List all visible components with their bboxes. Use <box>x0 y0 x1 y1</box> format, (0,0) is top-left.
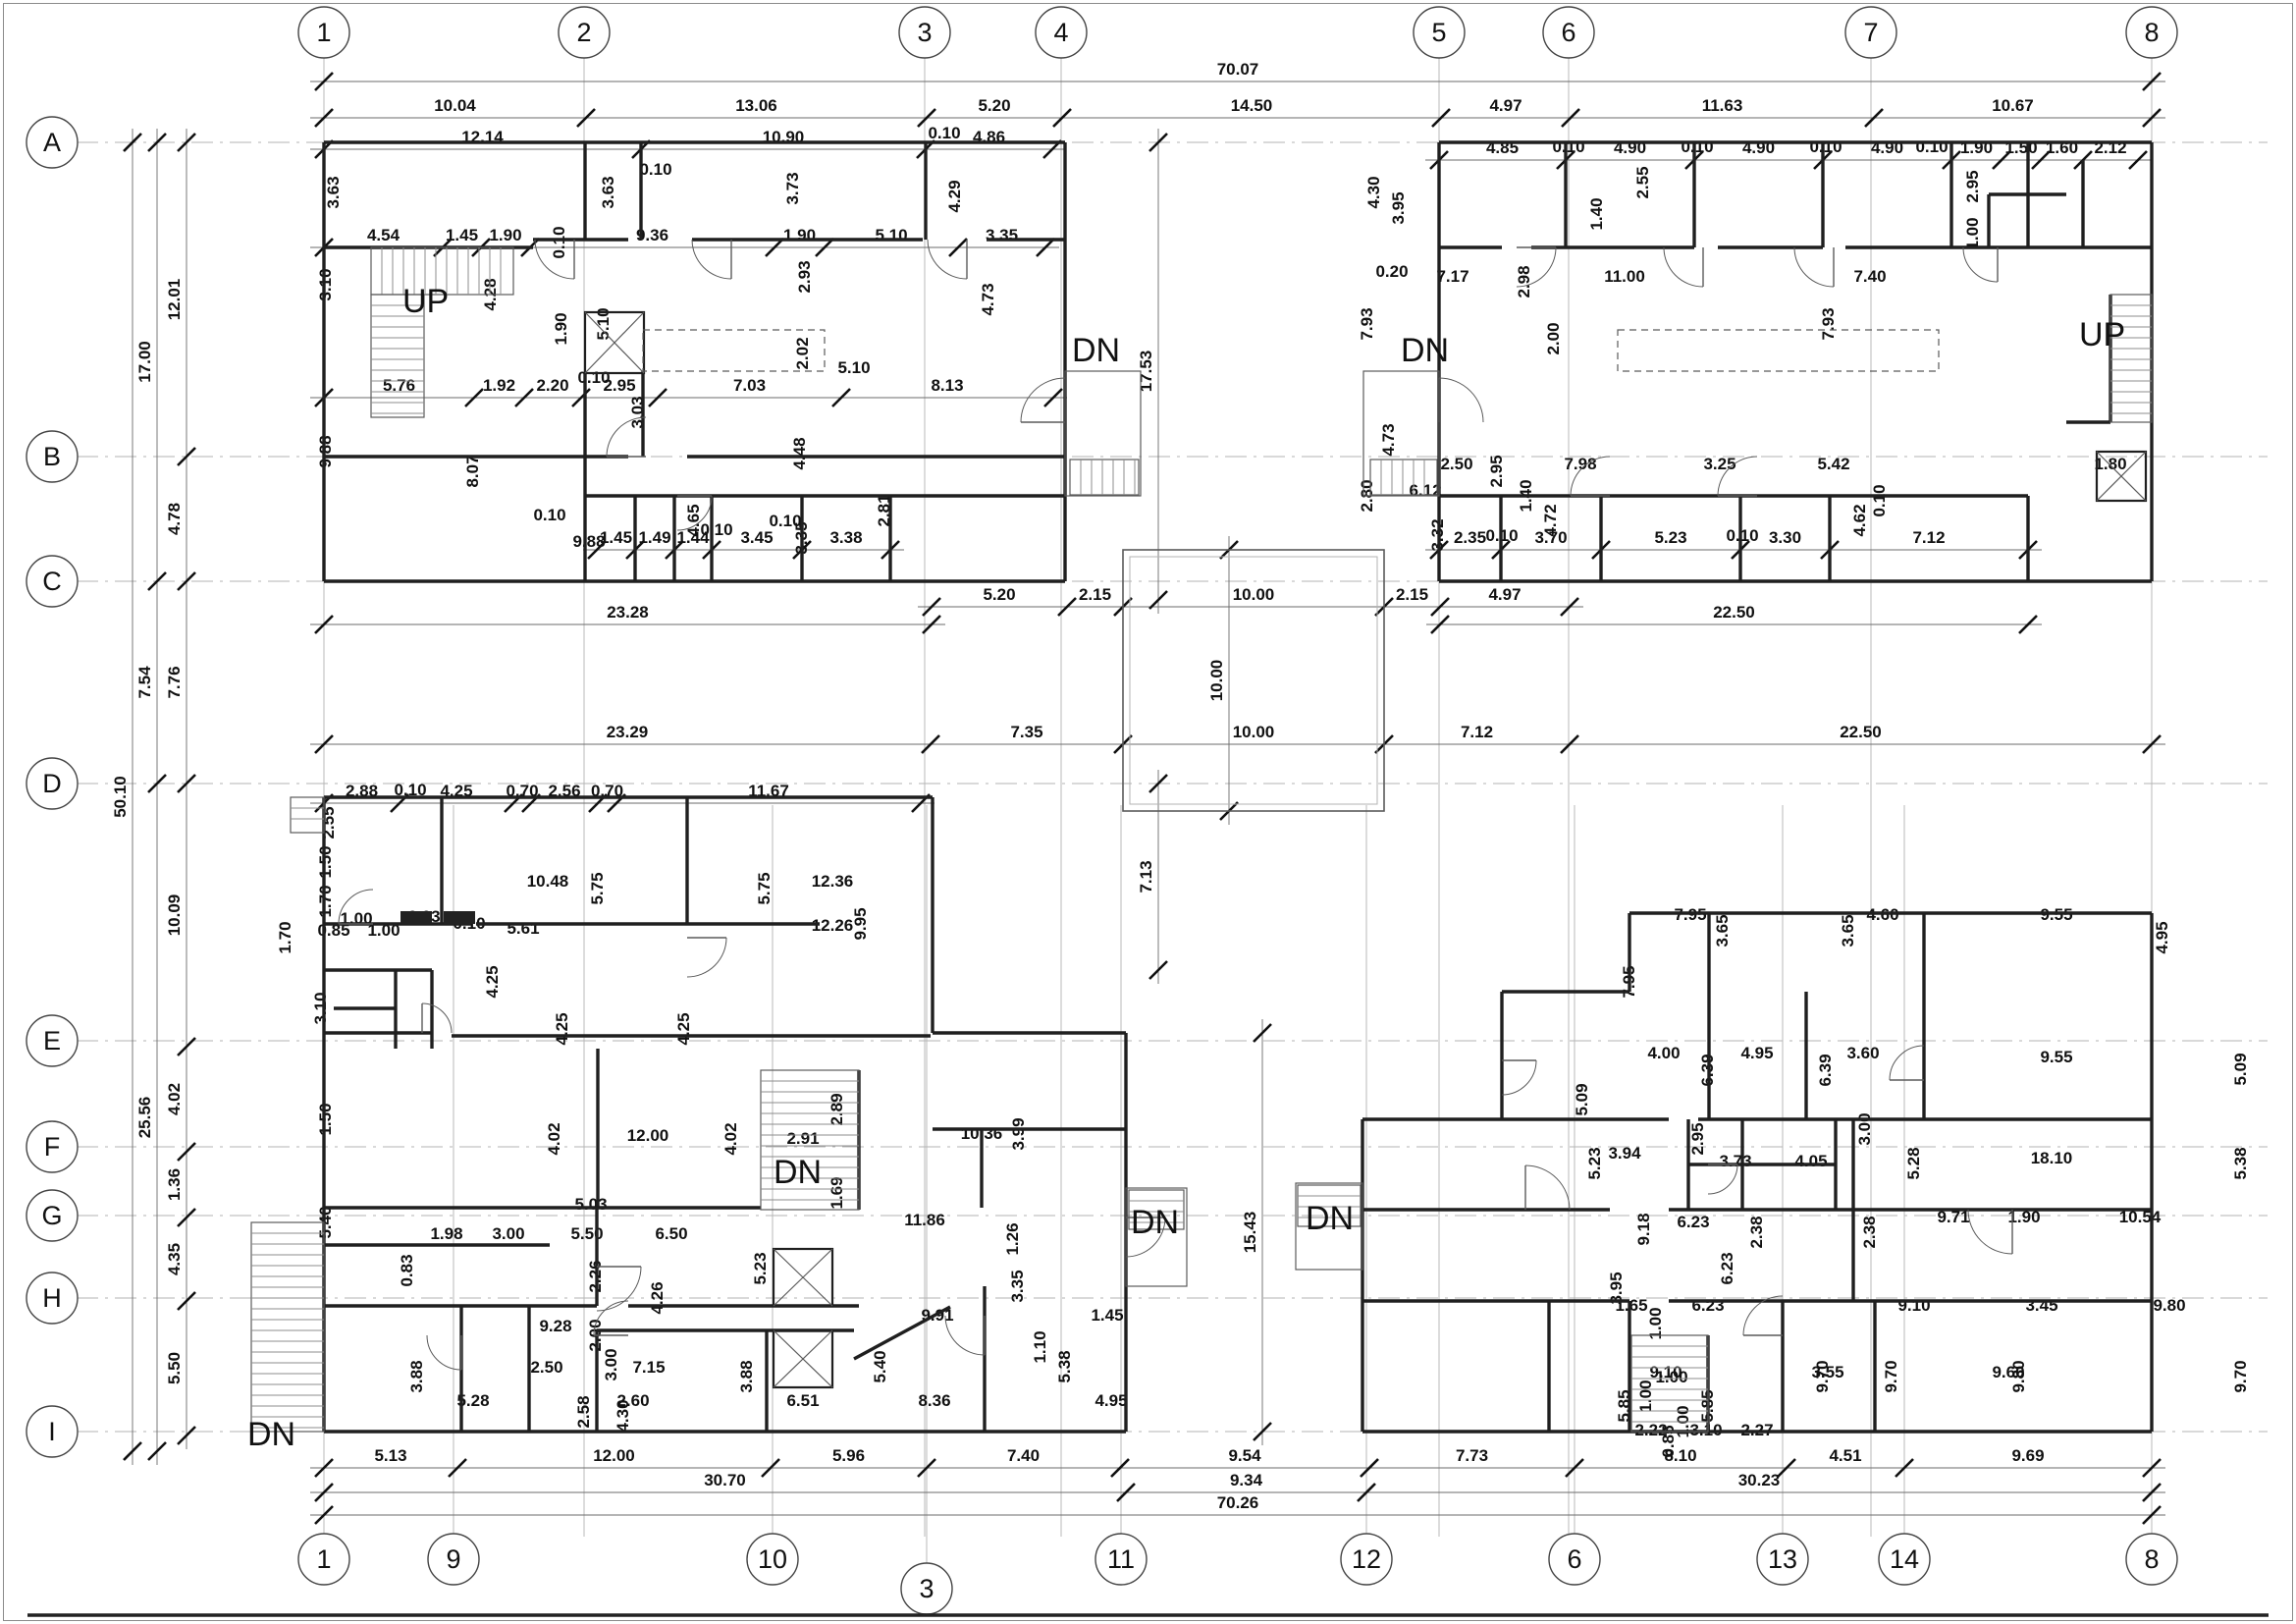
svg-text:14.50: 14.50 <box>1231 96 1273 115</box>
svg-text:4.02: 4.02 <box>545 1122 563 1155</box>
svg-text:5.96: 5.96 <box>832 1446 865 1465</box>
svg-text:10.04: 10.04 <box>434 96 476 115</box>
svg-text:5.23: 5.23 <box>751 1252 770 1284</box>
svg-text:4.73: 4.73 <box>1379 423 1398 456</box>
svg-text:3.10: 3.10 <box>311 992 330 1024</box>
svg-text:5.20: 5.20 <box>983 585 1015 604</box>
svg-text:A: A <box>43 128 61 157</box>
svg-text:B: B <box>43 442 61 471</box>
svg-text:5.75: 5.75 <box>755 872 774 904</box>
svg-text:5.40: 5.40 <box>871 1350 889 1382</box>
svg-text:7.12: 7.12 <box>1912 528 1945 547</box>
svg-text:3.94: 3.94 <box>1608 1144 1641 1163</box>
svg-text:3.73: 3.73 <box>783 172 802 204</box>
stair-label-dn: DN <box>1306 1200 1354 1237</box>
svg-text:1.26: 1.26 <box>1003 1222 1022 1255</box>
svg-text:10.00: 10.00 <box>1207 660 1226 702</box>
svg-text:9.88: 9.88 <box>572 532 605 551</box>
svg-text:1.70: 1.70 <box>276 921 294 953</box>
svg-text:2.60: 2.60 <box>616 1391 649 1410</box>
svg-text:9.95: 9.95 <box>851 907 870 940</box>
svg-text:4.00: 4.00 <box>1647 1044 1680 1062</box>
svg-text:1.69: 1.69 <box>828 1176 846 1209</box>
svg-text:12.00: 12.00 <box>627 1126 669 1145</box>
svg-text:9.80: 9.80 <box>2153 1296 2185 1315</box>
svg-text:5.28: 5.28 <box>1904 1147 1923 1179</box>
svg-text:6: 6 <box>1567 1544 1581 1574</box>
svg-text:10.48: 10.48 <box>527 872 569 891</box>
svg-text:3.88: 3.88 <box>407 1360 426 1392</box>
svg-text:2.20: 2.20 <box>536 376 568 395</box>
svg-text:3: 3 <box>917 18 932 47</box>
svg-text:10: 10 <box>758 1544 787 1574</box>
svg-text:2: 2 <box>576 18 591 47</box>
svg-text:3.73: 3.73 <box>1719 1152 1751 1170</box>
svg-text:2.35: 2.35 <box>1454 528 1486 547</box>
svg-text:9.28: 9.28 <box>539 1317 571 1335</box>
svg-text:1.98: 1.98 <box>430 1224 462 1243</box>
svg-text:2.55: 2.55 <box>319 806 338 839</box>
svg-text:3.30: 3.30 <box>1769 528 1801 547</box>
svg-text:4.95: 4.95 <box>1095 1391 1127 1410</box>
svg-text:9.69: 9.69 <box>2011 1446 2044 1465</box>
svg-text:6.50: 6.50 <box>655 1224 687 1243</box>
svg-text:12.01: 12.01 <box>165 279 184 321</box>
svg-text:7.03: 7.03 <box>733 376 766 395</box>
svg-text:0.10: 0.10 <box>928 124 960 142</box>
svg-text:7.40: 7.40 <box>1007 1446 1040 1465</box>
svg-text:2.58: 2.58 <box>574 1395 593 1428</box>
svg-text:0.10: 0.10 <box>769 512 801 530</box>
svg-text:10.00: 10.00 <box>1233 585 1275 604</box>
svg-text:6.23: 6.23 <box>1677 1213 1709 1231</box>
svg-text:6.51: 6.51 <box>786 1391 819 1410</box>
svg-text:6: 6 <box>1561 18 1575 47</box>
svg-text:1.45: 1.45 <box>1091 1306 1123 1325</box>
svg-text:2.89: 2.89 <box>828 1093 846 1125</box>
svg-text:11.86: 11.86 <box>904 1211 945 1229</box>
svg-text:4.05: 4.05 <box>1794 1152 1827 1170</box>
svg-text:4.95: 4.95 <box>1740 1044 1773 1062</box>
svg-text:2.38: 2.38 <box>1747 1216 1766 1248</box>
svg-text:2.00: 2.00 <box>1544 322 1563 354</box>
svg-text:0.10: 0.10 <box>1681 137 1713 156</box>
svg-text:3.00: 3.00 <box>602 1348 620 1380</box>
svg-text:13: 13 <box>1768 1544 1797 1574</box>
stair-label-up: UP <box>2079 316 2125 353</box>
svg-text:5.75: 5.75 <box>588 872 607 904</box>
svg-text:4.48: 4.48 <box>790 437 809 469</box>
svg-text:0.10: 0.10 <box>550 226 568 258</box>
svg-text:5.42: 5.42 <box>1817 455 1849 473</box>
svg-text:3.45: 3.45 <box>740 528 773 547</box>
svg-text:8.13: 8.13 <box>931 376 963 395</box>
svg-text:2.91: 2.91 <box>786 1129 819 1148</box>
svg-text:7: 7 <box>1863 18 1878 47</box>
svg-text:2.95: 2.95 <box>1487 455 1506 487</box>
svg-text:70.07: 70.07 <box>1217 60 1259 79</box>
svg-text:4.72: 4.72 <box>1541 504 1560 536</box>
svg-text:5.23: 5.23 <box>1585 1147 1604 1179</box>
svg-text:7.17: 7.17 <box>1436 267 1468 286</box>
svg-text:4: 4 <box>1053 18 1068 47</box>
svg-text:5.09: 5.09 <box>2231 1053 2250 1085</box>
svg-text:0.10: 0.10 <box>1915 137 1948 156</box>
svg-text:0.10: 0.10 <box>700 520 732 539</box>
svg-text:5.23: 5.23 <box>1654 528 1686 547</box>
svg-text:3.99: 3.99 <box>1009 1117 1028 1150</box>
svg-text:7.93: 7.93 <box>1819 307 1838 340</box>
grid-lines <box>27 57 2268 1563</box>
svg-text:3.35: 3.35 <box>1008 1270 1027 1302</box>
svg-text:4.95: 4.95 <box>2153 921 2171 953</box>
svg-text:3.65: 3.65 <box>1713 914 1732 947</box>
svg-text:3.38: 3.38 <box>829 528 862 547</box>
stair-label-dn: DN <box>247 1416 295 1453</box>
svg-text:2.55: 2.55 <box>1633 166 1652 198</box>
svg-text:G: G <box>41 1201 62 1230</box>
svg-text:1.00: 1.00 <box>1636 1380 1655 1412</box>
svg-text:3.55: 3.55 <box>1811 1363 1843 1381</box>
svg-text:22.50: 22.50 <box>1840 723 1882 741</box>
svg-text:9: 9 <box>446 1544 460 1574</box>
svg-text:9.60: 9.60 <box>1992 1363 2024 1381</box>
svg-text:1: 1 <box>316 18 331 47</box>
svg-text:7.54: 7.54 <box>135 666 154 699</box>
svg-text:5: 5 <box>1431 18 1446 47</box>
svg-text:9.10: 9.10 <box>1897 1296 1930 1315</box>
svg-text:8.07: 8.07 <box>463 455 482 487</box>
svg-text:2.95: 2.95 <box>1688 1122 1707 1155</box>
svg-text:7.13: 7.13 <box>1137 860 1155 893</box>
svg-text:7.73: 7.73 <box>1456 1446 1488 1465</box>
svg-text:0.10: 0.10 <box>1726 526 1758 545</box>
svg-text:3.00: 3.00 <box>492 1224 524 1243</box>
svg-text:1: 1 <box>316 1544 331 1574</box>
svg-text:5.50: 5.50 <box>165 1352 184 1384</box>
svg-text:50.10: 50.10 <box>111 776 130 818</box>
svg-text:4.26: 4.26 <box>648 1281 667 1314</box>
svg-text:10.00: 10.00 <box>1233 723 1275 741</box>
svg-text:9.34: 9.34 <box>1230 1471 1263 1489</box>
svg-text:0.10: 0.10 <box>533 506 565 524</box>
svg-text:4.25: 4.25 <box>483 965 502 998</box>
svg-text:0.10: 0.10 <box>639 160 671 179</box>
stair-label-dn: DN <box>1072 332 1120 369</box>
svg-text:15.43: 15.43 <box>1241 1212 1259 1254</box>
stair-label-dn: DN <box>1401 332 1449 369</box>
svg-text:3.60: 3.60 <box>1846 1044 1879 1062</box>
svg-text:4.97: 4.97 <box>1488 585 1521 604</box>
floor-plan-canvas: 12345678191031112613148ABCDEFGHI70.0710.… <box>0 0 2296 1624</box>
svg-text:C: C <box>42 567 62 596</box>
svg-text:3.88: 3.88 <box>737 1360 756 1392</box>
svg-text:3.63: 3.63 <box>599 176 617 208</box>
floorplan-sheet: 12345678191031112613148ABCDEFGHI70.0710.… <box>0 0 2296 1624</box>
svg-text:4.02: 4.02 <box>721 1122 740 1155</box>
svg-text:1.49: 1.49 <box>638 528 670 547</box>
svg-text:9.70: 9.70 <box>1882 1360 1900 1392</box>
svg-text:6.39: 6.39 <box>1816 1054 1835 1086</box>
svg-text:D: D <box>42 769 62 798</box>
svg-text:9.54: 9.54 <box>1228 1446 1261 1465</box>
svg-text:2.38: 2.38 <box>1860 1216 1879 1248</box>
svg-text:23.28: 23.28 <box>607 603 649 622</box>
svg-text:5.03: 5.03 <box>574 1195 607 1214</box>
svg-text:4.51: 4.51 <box>1829 1446 1861 1465</box>
svg-text:0.83: 0.83 <box>398 1254 416 1286</box>
svg-text:9.18: 9.18 <box>1634 1213 1653 1245</box>
svg-text:2.95: 2.95 <box>1963 170 1982 202</box>
svg-text:30.70: 30.70 <box>704 1471 746 1489</box>
svg-text:14: 14 <box>1890 1544 1919 1574</box>
svg-text:1.45: 1.45 <box>446 226 478 244</box>
svg-text:70.26: 70.26 <box>1217 1493 1259 1512</box>
svg-text:1.10: 1.10 <box>1031 1330 1049 1363</box>
svg-text:3.95: 3.95 <box>1389 191 1408 224</box>
svg-text:0.10: 0.10 <box>577 368 610 387</box>
svg-text:1.90: 1.90 <box>489 226 521 244</box>
svg-text:2.15: 2.15 <box>1396 585 1428 604</box>
svg-text:5.38: 5.38 <box>2231 1147 2250 1179</box>
svg-text:2.02: 2.02 <box>793 337 812 369</box>
svg-text:1.40: 1.40 <box>1587 197 1606 230</box>
svg-text:0.10: 0.10 <box>1809 137 1842 156</box>
svg-text:0.20: 0.20 <box>1375 262 1408 281</box>
svg-text:10.67: 10.67 <box>1992 96 2034 115</box>
svg-text:5.20: 5.20 <box>978 96 1010 115</box>
svg-text:6.23: 6.23 <box>1718 1252 1736 1284</box>
svg-text:6.23: 6.23 <box>1691 1296 1724 1315</box>
svg-text:7.15: 7.15 <box>632 1358 665 1377</box>
svg-text:2.93: 2.93 <box>795 260 814 293</box>
svg-text:11.63: 11.63 <box>1702 96 1743 115</box>
svg-text:1.00: 1.00 <box>1963 217 1982 249</box>
svg-text:4.25: 4.25 <box>674 1012 693 1045</box>
svg-text:4.62: 4.62 <box>1850 504 1869 536</box>
svg-text:9.55: 9.55 <box>2040 1048 2072 1066</box>
svg-text:7.35: 7.35 <box>1010 723 1042 741</box>
svg-text:9.70: 9.70 <box>2231 1360 2250 1392</box>
svg-text:1.36: 1.36 <box>165 1168 184 1201</box>
svg-text:12.00: 12.00 <box>593 1446 635 1465</box>
svg-text:1.65: 1.65 <box>1615 1296 1647 1315</box>
svg-text:5.38: 5.38 <box>1055 1350 1074 1382</box>
svg-text:3.25: 3.25 <box>1703 455 1735 473</box>
svg-text:10.09: 10.09 <box>165 894 184 937</box>
svg-text:2.15: 2.15 <box>1079 585 1111 604</box>
svg-text:F: F <box>44 1132 61 1162</box>
svg-text:7.12: 7.12 <box>1461 723 1493 741</box>
svg-text:22.50: 22.50 <box>1713 603 1755 622</box>
svg-text:7.76: 7.76 <box>165 666 184 698</box>
svg-text:8: 8 <box>2144 1544 2159 1574</box>
svg-text:4.30: 4.30 <box>1364 176 1383 208</box>
stair-label-dn: DN <box>774 1154 822 1191</box>
svg-text:7.93: 7.93 <box>1358 307 1376 340</box>
svg-text:H: H <box>42 1283 62 1313</box>
svg-text:5.10: 5.10 <box>875 226 907 244</box>
svg-text:5.10: 5.10 <box>837 358 870 377</box>
svg-text:5.61: 5.61 <box>507 919 539 938</box>
svg-text:3.35: 3.35 <box>986 226 1018 244</box>
svg-text:4.29: 4.29 <box>945 180 964 212</box>
svg-text:4.78: 4.78 <box>165 503 184 535</box>
svg-text:4.73: 4.73 <box>979 283 997 315</box>
svg-text:8: 8 <box>2144 18 2159 47</box>
svg-text:30.23: 30.23 <box>1738 1471 1781 1489</box>
stair-label-up: UP <box>402 283 449 320</box>
svg-text:13.06: 13.06 <box>735 96 777 115</box>
svg-text:1.90: 1.90 <box>783 226 816 244</box>
svg-text:0.10: 0.10 <box>1552 137 1584 156</box>
svg-text:4.54: 4.54 <box>367 226 400 244</box>
svg-text:2.50: 2.50 <box>1440 455 1472 473</box>
svg-text:8.36: 8.36 <box>918 1391 950 1410</box>
svg-text:3.65: 3.65 <box>1839 914 1857 947</box>
svg-text:2.50: 2.50 <box>530 1358 562 1377</box>
svg-text:12.36: 12.36 <box>812 872 854 891</box>
svg-text:11: 11 <box>1107 1544 1135 1574</box>
svg-text:1.80: 1.80 <box>2094 455 2126 473</box>
svg-text:18.10: 18.10 <box>2031 1149 2073 1167</box>
svg-text:5.13: 5.13 <box>374 1446 406 1465</box>
svg-text:4.35: 4.35 <box>165 1243 184 1275</box>
svg-text:25.56: 25.56 <box>135 1097 154 1139</box>
svg-text:I: I <box>48 1417 56 1446</box>
stair-label-dn: DN <box>1131 1204 1179 1241</box>
svg-text:3.45: 3.45 <box>2025 1296 2057 1315</box>
svg-text:17.00: 17.00 <box>135 341 154 383</box>
svg-text:0.10: 0.10 <box>1870 484 1889 516</box>
svg-text:4.02: 4.02 <box>165 1083 184 1115</box>
svg-text:1.92: 1.92 <box>483 376 515 395</box>
svg-text:23.29: 23.29 <box>607 723 649 741</box>
svg-text:E: E <box>43 1026 61 1056</box>
svg-text:4.97: 4.97 <box>1489 96 1522 115</box>
svg-text:5.09: 5.09 <box>1573 1083 1591 1115</box>
svg-text:3.63: 3.63 <box>324 176 343 208</box>
svg-text:4.25: 4.25 <box>553 1012 571 1045</box>
svg-text:1.90: 1.90 <box>552 312 570 345</box>
svg-text:7.40: 7.40 <box>1853 267 1886 286</box>
svg-text:11.00: 11.00 <box>1604 267 1645 286</box>
svg-text:12: 12 <box>1352 1544 1381 1574</box>
svg-text:3: 3 <box>919 1574 934 1603</box>
fixtures <box>251 247 2152 1432</box>
svg-text:2.98: 2.98 <box>1515 265 1533 298</box>
